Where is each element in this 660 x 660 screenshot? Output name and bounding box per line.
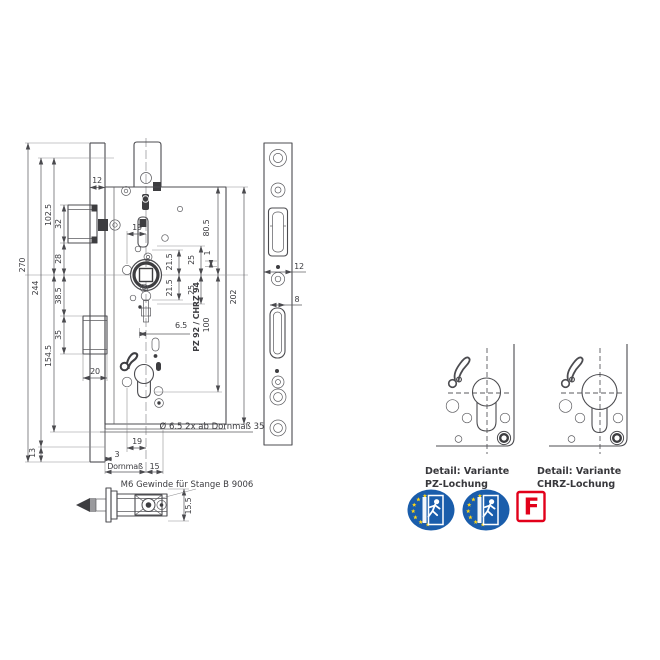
drive-rod-top xyxy=(134,142,161,191)
detail-pz-title-line2: PZ-Lochung xyxy=(425,479,488,490)
chrz-lever xyxy=(562,357,583,387)
chrz-screw xyxy=(610,431,623,444)
dim-15-5: 15.5 xyxy=(184,497,193,514)
top-cutout-box xyxy=(68,205,97,243)
chrz-keyhole xyxy=(582,375,617,433)
dim-15: 15 xyxy=(150,462,160,471)
detail-chrz-title-line1: Detail: Variante xyxy=(537,466,621,477)
bottom-section-view: M6 Gewinde für Stange B 9006 15.5 xyxy=(76,480,253,522)
dim-faceplate-8: 8 xyxy=(295,295,300,304)
pz-keyhole xyxy=(473,378,501,431)
dim-19-top: 19 xyxy=(132,223,142,232)
pawl-lever xyxy=(121,353,137,370)
dim-80-5: 80.5 xyxy=(202,219,211,236)
fire-rating-letter: F xyxy=(524,495,540,521)
variant-label: PZ 92 / CHRZ 94 xyxy=(192,282,201,352)
en1125-exit-badge-icon xyxy=(463,490,510,531)
dim-1: 1 xyxy=(203,250,212,255)
dim-19-bottom: 19 xyxy=(132,437,142,446)
faceplate-front-view: 12 8 xyxy=(264,143,306,445)
detail-chrz: Detail: Variante CHRZ-Lochung xyxy=(537,344,627,490)
detail-pz: Detail: Variante PZ-Lochung xyxy=(425,344,514,490)
dim-102-5: 102.5 xyxy=(44,204,53,226)
holes-note: Ø 6.5 2x ab Dornmaß 35 xyxy=(160,421,265,432)
bottom-cutout-box xyxy=(83,316,107,354)
dornmass-label: Dornmaß xyxy=(107,462,143,471)
cylinder-hole-pz xyxy=(135,365,154,398)
dim-100: 100 xyxy=(202,318,211,333)
dim-20: 20 xyxy=(90,367,100,376)
certification-badges: F xyxy=(408,490,545,531)
lock-technical-drawing-page: 270 244 102.5 154.5 13 32 28 38.5 35 12 … xyxy=(0,0,660,660)
dim-12-top: 12 xyxy=(92,176,102,185)
pz-screw xyxy=(497,431,510,444)
dim-28: 28 xyxy=(54,254,63,264)
dim-244: 244 xyxy=(31,281,40,296)
dim-3: 3 xyxy=(115,450,120,459)
detail-chrz-title-line2: CHRZ-Lochung xyxy=(537,479,615,490)
dim-32: 32 xyxy=(54,219,63,229)
fire-rating-icon: F xyxy=(518,492,545,521)
detail-pz-title-line1: Detail: Variante xyxy=(425,466,509,477)
dim-21-5-up: 21.5 xyxy=(165,253,174,270)
m6-note: M6 Gewinde für Stange B 9006 xyxy=(121,480,254,490)
dim-25-up: 25 xyxy=(187,255,196,265)
fixing-hole-bottom xyxy=(122,377,132,387)
technical-drawing: 270 244 102.5 154.5 13 32 28 38.5 35 12 … xyxy=(0,0,660,660)
pz-lever xyxy=(449,357,470,387)
dim-270: 270 xyxy=(18,258,27,273)
dim-202: 202 xyxy=(229,290,238,305)
dim-154-5: 154.5 xyxy=(44,345,53,367)
dim-35: 35 xyxy=(54,330,63,340)
dim-38-5: 38.5 xyxy=(54,287,63,304)
dim-13: 13 xyxy=(28,448,37,458)
dim-6-5: 6.5 xyxy=(175,321,187,330)
follower-nut xyxy=(131,260,162,291)
stulp-side-view xyxy=(90,143,105,462)
lock-assembly-view: 270 244 102.5 154.5 13 32 28 38.5 35 12 … xyxy=(18,138,264,521)
dim-21-5-down: 21.5 xyxy=(165,279,174,296)
dim-faceplate-12: 12 xyxy=(294,262,304,271)
en179-exit-badge-icon xyxy=(408,490,455,531)
